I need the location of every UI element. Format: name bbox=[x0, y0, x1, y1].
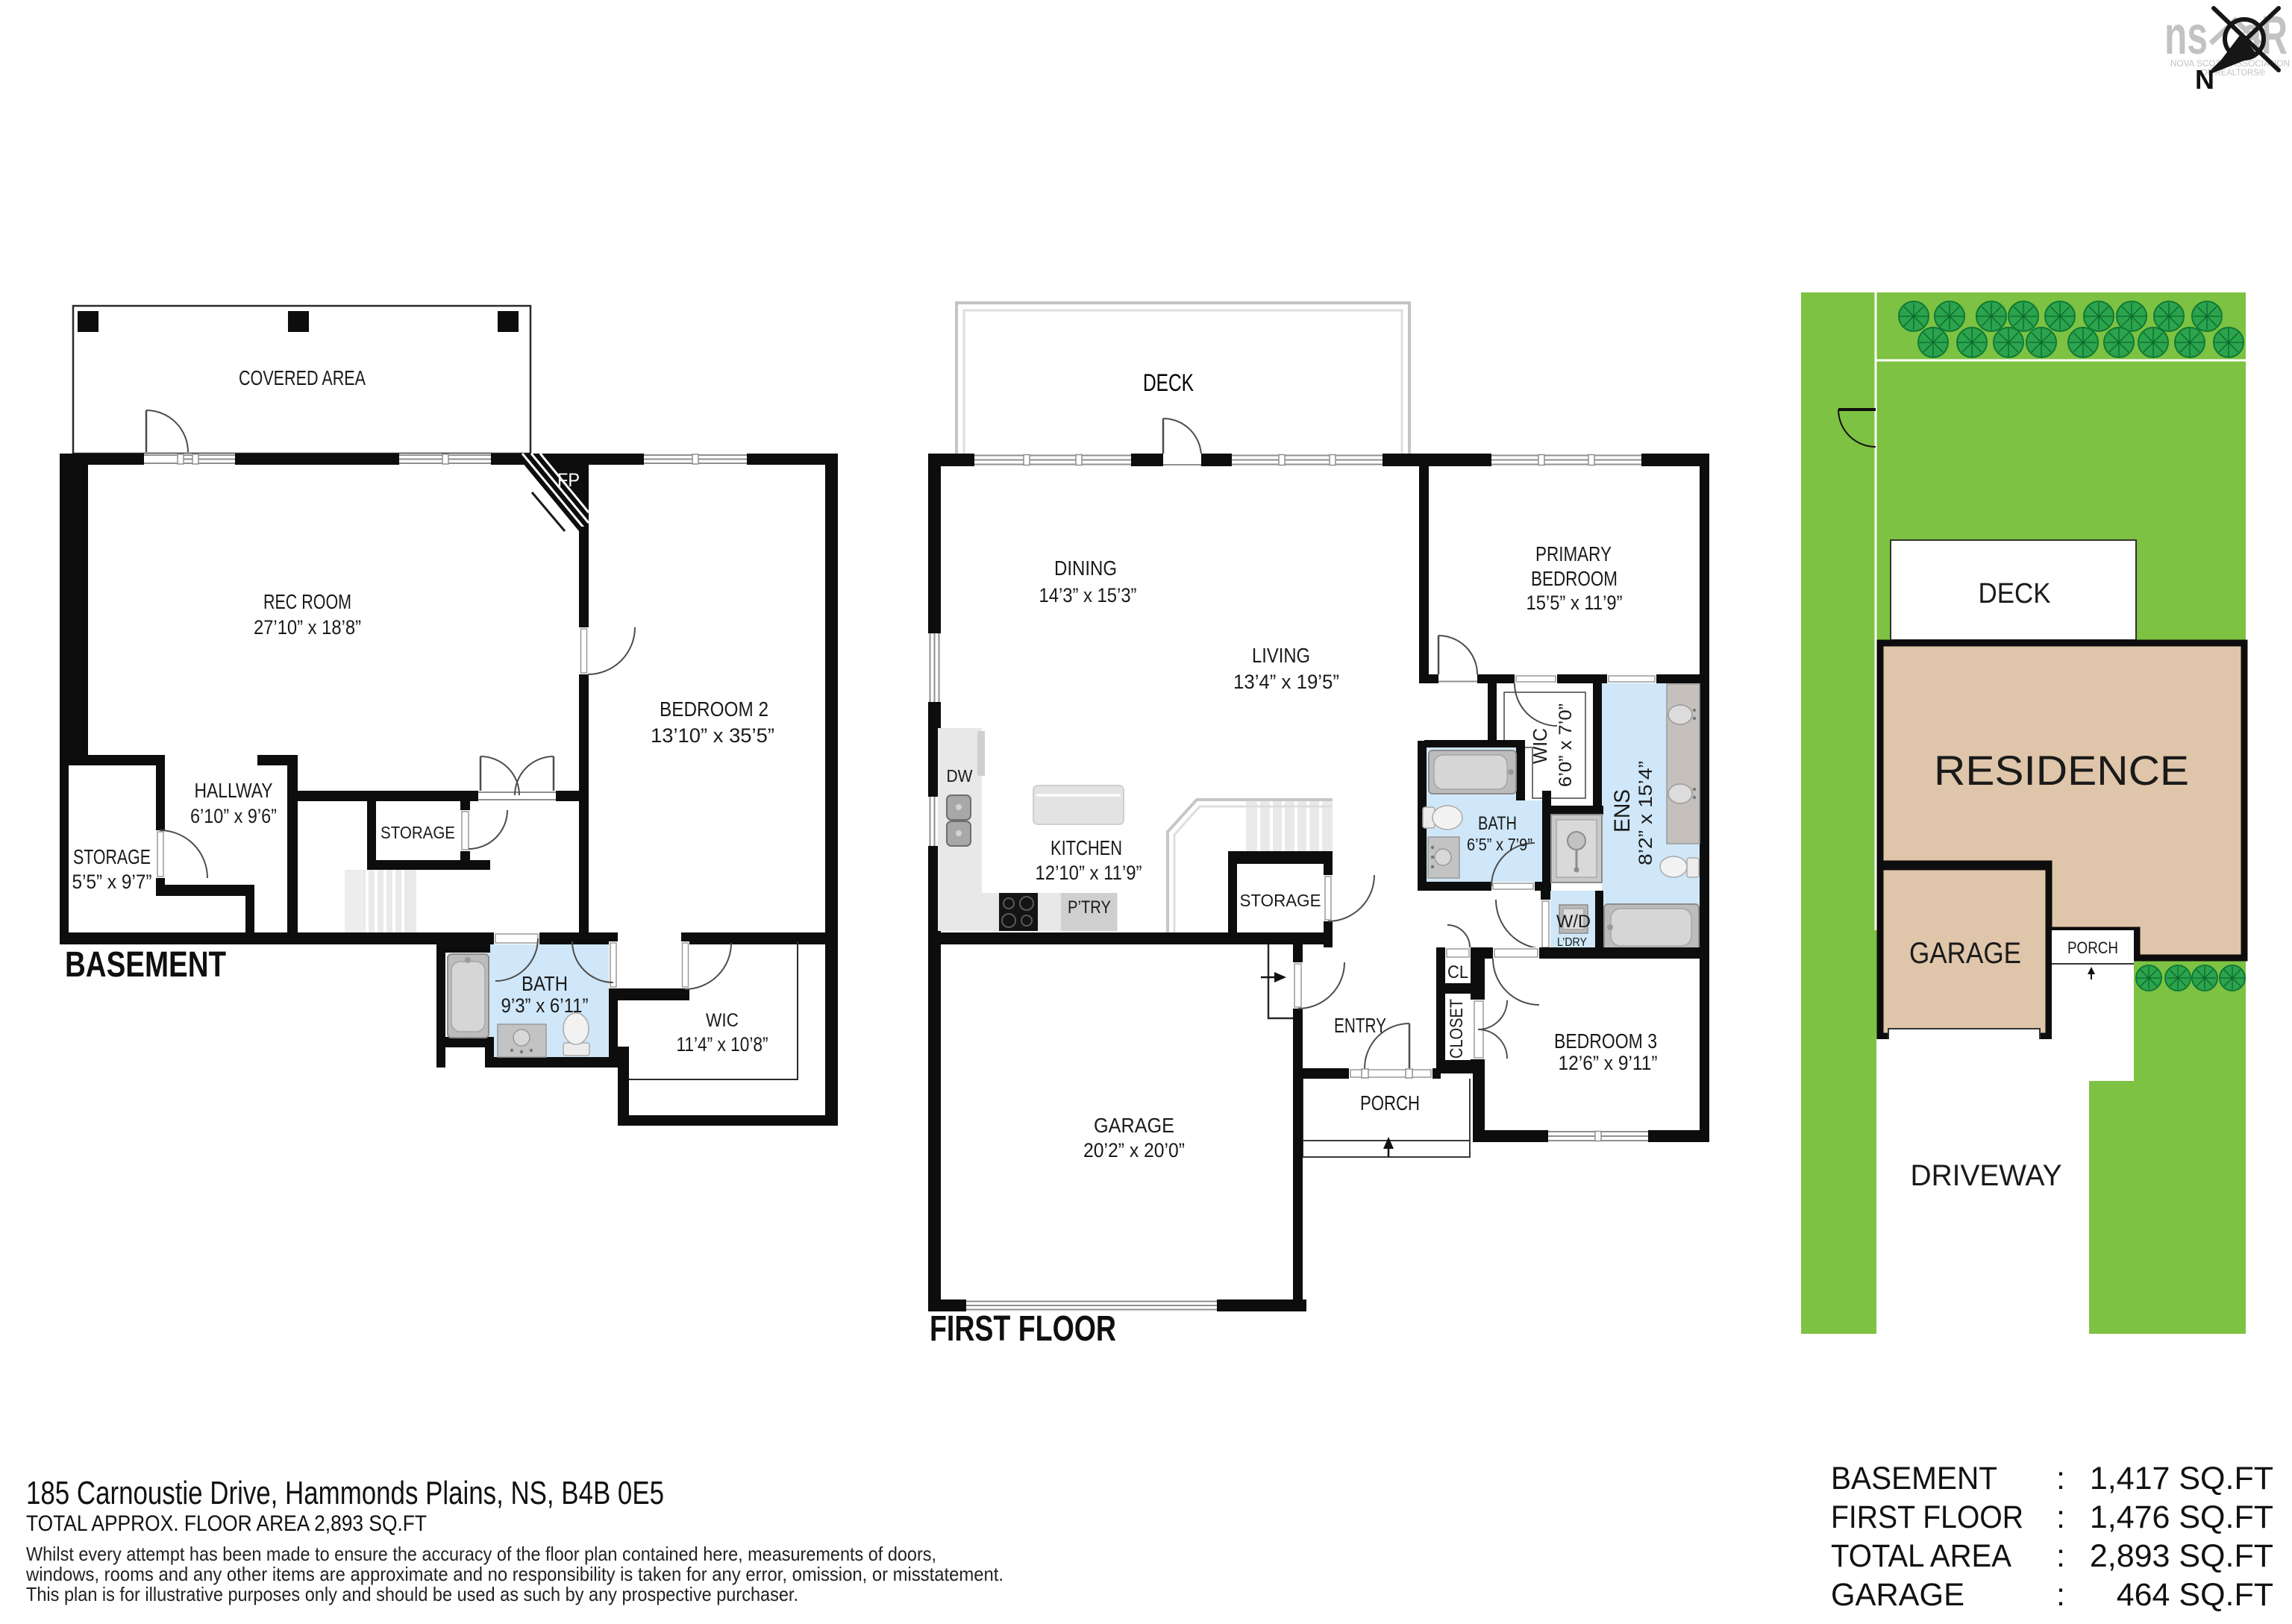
svg-text:REC ROOM: REC ROOM bbox=[263, 590, 351, 613]
svg-text:BEDROOM 3: BEDROOM 3 bbox=[1554, 1029, 1657, 1053]
svg-text:8’2” x 15’4”: 8’2” x 15’4” bbox=[1635, 761, 1656, 865]
svg-text:RESIDENCE: RESIDENCE bbox=[1934, 747, 2189, 794]
svg-text:11’4” x 10’8”: 11’4” x 10’8” bbox=[677, 1033, 768, 1056]
svg-text:W/D: W/D bbox=[1556, 912, 1591, 932]
svg-text:13’4” x 19’5”: 13’4” x 19’5” bbox=[1233, 671, 1339, 693]
svg-text::: : bbox=[2056, 1461, 2065, 1496]
svg-text:P’TRY: P’TRY bbox=[1068, 897, 1111, 918]
svg-text:WIC: WIC bbox=[706, 1010, 739, 1031]
svg-text:1,476 SQ.FT: 1,476 SQ.FT bbox=[2090, 1499, 2273, 1535]
svg-text:CLOSET: CLOSET bbox=[1447, 999, 1467, 1059]
svg-text::: : bbox=[2056, 1499, 2065, 1535]
svg-text:ENTRY: ENTRY bbox=[1334, 1014, 1386, 1037]
svg-text:6’10” x 9’6”: 6’10” x 9’6” bbox=[190, 805, 277, 827]
svg-text:STORAGE: STORAGE bbox=[73, 845, 151, 868]
svg-text:TOTAL AREA: TOTAL AREA bbox=[1831, 1538, 2011, 1574]
svg-text:GARAGE: GARAGE bbox=[1909, 937, 2021, 970]
svg-text:5’5” x 9’7”: 5’5” x 9’7” bbox=[72, 871, 152, 893]
svg-text:GARAGE: GARAGE bbox=[1831, 1577, 1964, 1613]
svg-text:TOTAL APPROX. FLOOR AREA 2,893: TOTAL APPROX. FLOOR AREA 2,893 SQ.FT bbox=[26, 1511, 427, 1536]
svg-text::: : bbox=[2056, 1577, 2065, 1613]
svg-text:BATH: BATH bbox=[1478, 813, 1517, 834]
svg-text:LIVING: LIVING bbox=[1252, 644, 1310, 667]
svg-text:DW: DW bbox=[947, 766, 973, 786]
svg-text:windows, rooms and any other i: windows, rooms and any other items are a… bbox=[25, 1563, 1003, 1585]
svg-text:6’0” x 7’0”: 6’0” x 7’0” bbox=[1556, 703, 1576, 787]
svg-text:27’10” x 18’8”: 27’10” x 18’8” bbox=[254, 616, 361, 639]
svg-text:15’5” x 11’9”: 15’5” x 11’9” bbox=[1527, 592, 1623, 614]
svg-text:BASEMENT: BASEMENT bbox=[65, 945, 226, 985]
svg-text:12’6” x 9’11”: 12’6” x 9’11” bbox=[1559, 1052, 1658, 1074]
svg-text:Whilst every attempt has been: Whilst every attempt has been made to en… bbox=[26, 1543, 936, 1565]
svg-text:KITCHEN: KITCHEN bbox=[1050, 836, 1122, 859]
svg-text:HALLWAY: HALLWAY bbox=[195, 779, 273, 802]
svg-text:FIRST FLOOR: FIRST FLOOR bbox=[1831, 1499, 2023, 1535]
svg-text:BEDROOM: BEDROOM bbox=[1531, 567, 1618, 590]
svg-text:CL: CL bbox=[1447, 962, 1468, 982]
svg-text:14’3” x 15’3”: 14’3” x 15’3” bbox=[1039, 584, 1137, 606]
svg-text:DECK: DECK bbox=[1979, 578, 2051, 609]
svg-text:STORAGE: STORAGE bbox=[1240, 891, 1321, 910]
svg-text:FP: FP bbox=[557, 470, 580, 491]
svg-text:N: N bbox=[2195, 64, 2214, 95]
svg-text:DINING: DINING bbox=[1054, 557, 1117, 580]
svg-text:1,417 SQ.FT: 1,417 SQ.FT bbox=[2090, 1461, 2273, 1496]
svg-text:BATH: BATH bbox=[522, 972, 568, 995]
svg-text:9’3” x 6’11”: 9’3” x 6’11” bbox=[501, 994, 589, 1017]
svg-text:PRIMARY: PRIMARY bbox=[1535, 542, 1612, 565]
svg-text:PORCH: PORCH bbox=[1360, 1091, 1420, 1114]
svg-text:BASEMENT: BASEMENT bbox=[1831, 1461, 1997, 1496]
svg-text::: : bbox=[2056, 1538, 2065, 1574]
svg-text:20’2” x 20’0”: 20’2” x 20’0” bbox=[1083, 1139, 1185, 1161]
svg-text:ENS: ENS bbox=[1610, 789, 1635, 833]
svg-text:ns: ns bbox=[2164, 6, 2208, 66]
svg-text:13’10” x 35’5”: 13’10” x 35’5” bbox=[651, 724, 774, 747]
svg-text:FIRST FLOOR: FIRST FLOOR bbox=[930, 1309, 1116, 1349]
svg-text:6’5” x 7’9”: 6’5” x 7’9” bbox=[1467, 835, 1532, 854]
svg-text:This plan is for illustrative: This plan is for illustrative purposes o… bbox=[26, 1583, 798, 1605]
svg-text:464 SQ.FT: 464 SQ.FT bbox=[2117, 1577, 2273, 1613]
svg-text:STORAGE: STORAGE bbox=[381, 823, 455, 842]
svg-text:185 Carnoustie Drive, Hammonds: 185 Carnoustie Drive, Hammonds Plains, N… bbox=[26, 1475, 664, 1511]
svg-text:PORCH: PORCH bbox=[2067, 938, 2118, 957]
svg-text:WIC: WIC bbox=[1529, 728, 1551, 764]
svg-text:DECK: DECK bbox=[1143, 369, 1194, 396]
svg-text:GARAGE: GARAGE bbox=[1094, 1114, 1174, 1137]
svg-text:2,893 SQ.FT: 2,893 SQ.FT bbox=[2090, 1538, 2273, 1574]
svg-text:12’10” x 11’9”: 12’10” x 11’9” bbox=[1036, 862, 1142, 884]
svg-text:BEDROOM 2: BEDROOM 2 bbox=[660, 697, 768, 721]
svg-text:COVERED AREA: COVERED AREA bbox=[239, 366, 366, 389]
svg-text:L’DRY: L’DRY bbox=[1557, 936, 1587, 949]
svg-text:DRIVEWAY: DRIVEWAY bbox=[1911, 1159, 2062, 1192]
